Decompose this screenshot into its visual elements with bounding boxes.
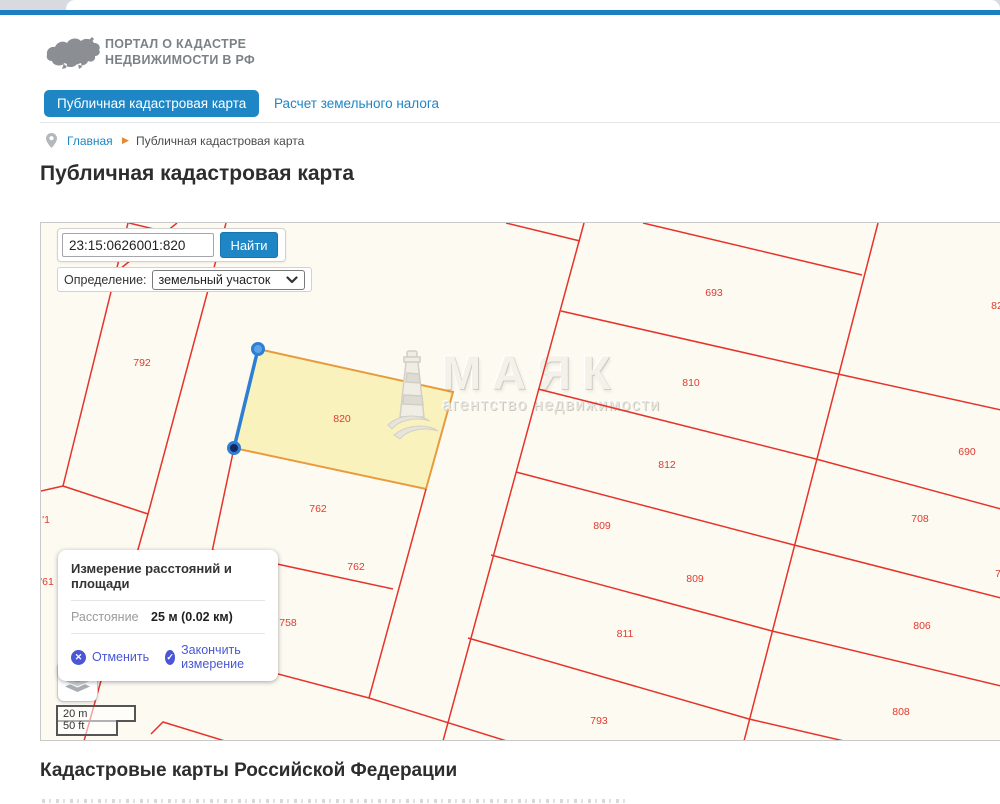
definition-selected-option: земельный участок bbox=[159, 273, 271, 287]
definition-label: Определение: bbox=[64, 273, 147, 287]
tabs-divider bbox=[40, 122, 1000, 123]
chevron-down-icon bbox=[286, 276, 298, 284]
parcel-search-panel: Найти bbox=[57, 228, 286, 262]
parcel-boundary-line bbox=[369, 489, 426, 698]
popup-divider bbox=[71, 633, 265, 634]
measure-line bbox=[234, 349, 258, 448]
definition-panel: Определение: земельный участок bbox=[57, 267, 312, 292]
scale-imperial: 50 ft bbox=[56, 720, 118, 736]
russia-map-logo-icon bbox=[44, 35, 102, 76]
breadcrumb-separator-icon: ▶ bbox=[122, 135, 129, 146]
site-title-line1: ПОРТАЛ О КАДАСТРЕ bbox=[105, 36, 255, 52]
site-title: ПОРТАЛ О КАДАСТРЕ НЕДВИЖИМОСТИ В РФ bbox=[105, 36, 255, 68]
search-button[interactable]: Найти bbox=[220, 232, 278, 258]
browser-tab bbox=[66, 0, 1000, 10]
parcel-boundary-line bbox=[516, 472, 1000, 598]
parcel-boundary-line bbox=[643, 223, 862, 275]
parcel-boundary-line bbox=[744, 223, 878, 741]
parcel-boundary-line bbox=[561, 311, 1000, 410]
cancel-icon: ✕ bbox=[71, 650, 86, 665]
parcel-boundary-line bbox=[538, 389, 1000, 509]
parcel-boundary-line bbox=[443, 223, 584, 741]
measure-vertex-marker[interactable] bbox=[253, 344, 264, 355]
tab-land-tax-calc[interactable]: Расчет земельного налога bbox=[274, 96, 439, 111]
measure-popup-title: Измерение расстояний и площади bbox=[71, 561, 265, 591]
cadastral-map[interactable]: МАЯК агентство недвижимости 792820693810… bbox=[40, 222, 1000, 741]
distance-value: 25 м (0.02 км) bbox=[151, 610, 233, 624]
definition-select[interactable]: земельный участок bbox=[152, 270, 306, 290]
parcel-boundary-line bbox=[63, 223, 128, 486]
page-title: Публичная кадастровая карта bbox=[40, 162, 354, 186]
site-accent-bar bbox=[0, 10, 1000, 15]
cancel-measure-label: Отменить bbox=[92, 650, 149, 664]
breadcrumb-current: Публичная кадастровая карта bbox=[136, 134, 304, 148]
finish-measure-button[interactable]: ✓ Закончить измерение bbox=[165, 643, 265, 671]
popup-divider bbox=[71, 600, 265, 601]
parcel-boundary-line bbox=[506, 223, 580, 241]
distance-label: Расстояние bbox=[71, 610, 139, 624]
finish-measure-label: Закончить измерение bbox=[181, 643, 265, 671]
measure-vertex-marker[interactable] bbox=[229, 443, 240, 454]
footer-heading: Кадастровые карты Российской Федерации bbox=[40, 760, 457, 782]
browser-tab-strip bbox=[0, 0, 1000, 10]
parcel-boundary-line bbox=[41, 486, 63, 491]
parcel-search-input[interactable] bbox=[62, 233, 214, 257]
check-icon: ✓ bbox=[165, 650, 175, 665]
parcel-boundary-line bbox=[151, 722, 238, 741]
cancel-measure-button[interactable]: ✕ Отменить bbox=[71, 650, 149, 665]
scale-control: 20 m 50 ft bbox=[56, 705, 136, 736]
clipped-text-sliver bbox=[42, 799, 627, 803]
parcel-boundary-line bbox=[63, 486, 148, 514]
page: ПОРТАЛ О КАДАСТРЕ НЕДВИЖИМОСТИ В РФ Публ… bbox=[0, 0, 1000, 804]
location-pin-icon bbox=[46, 133, 57, 153]
measure-popup: Измерение расстояний и площади Расстояни… bbox=[58, 550, 278, 681]
tab-public-cadastral-map[interactable]: Публичная кадастровая карта bbox=[44, 90, 259, 117]
breadcrumb-home-link[interactable]: Главная bbox=[67, 134, 113, 148]
site-title-line2: НЕДВИЖИМОСТИ В РФ bbox=[105, 52, 255, 68]
parcel-boundary-line bbox=[468, 638, 844, 741]
